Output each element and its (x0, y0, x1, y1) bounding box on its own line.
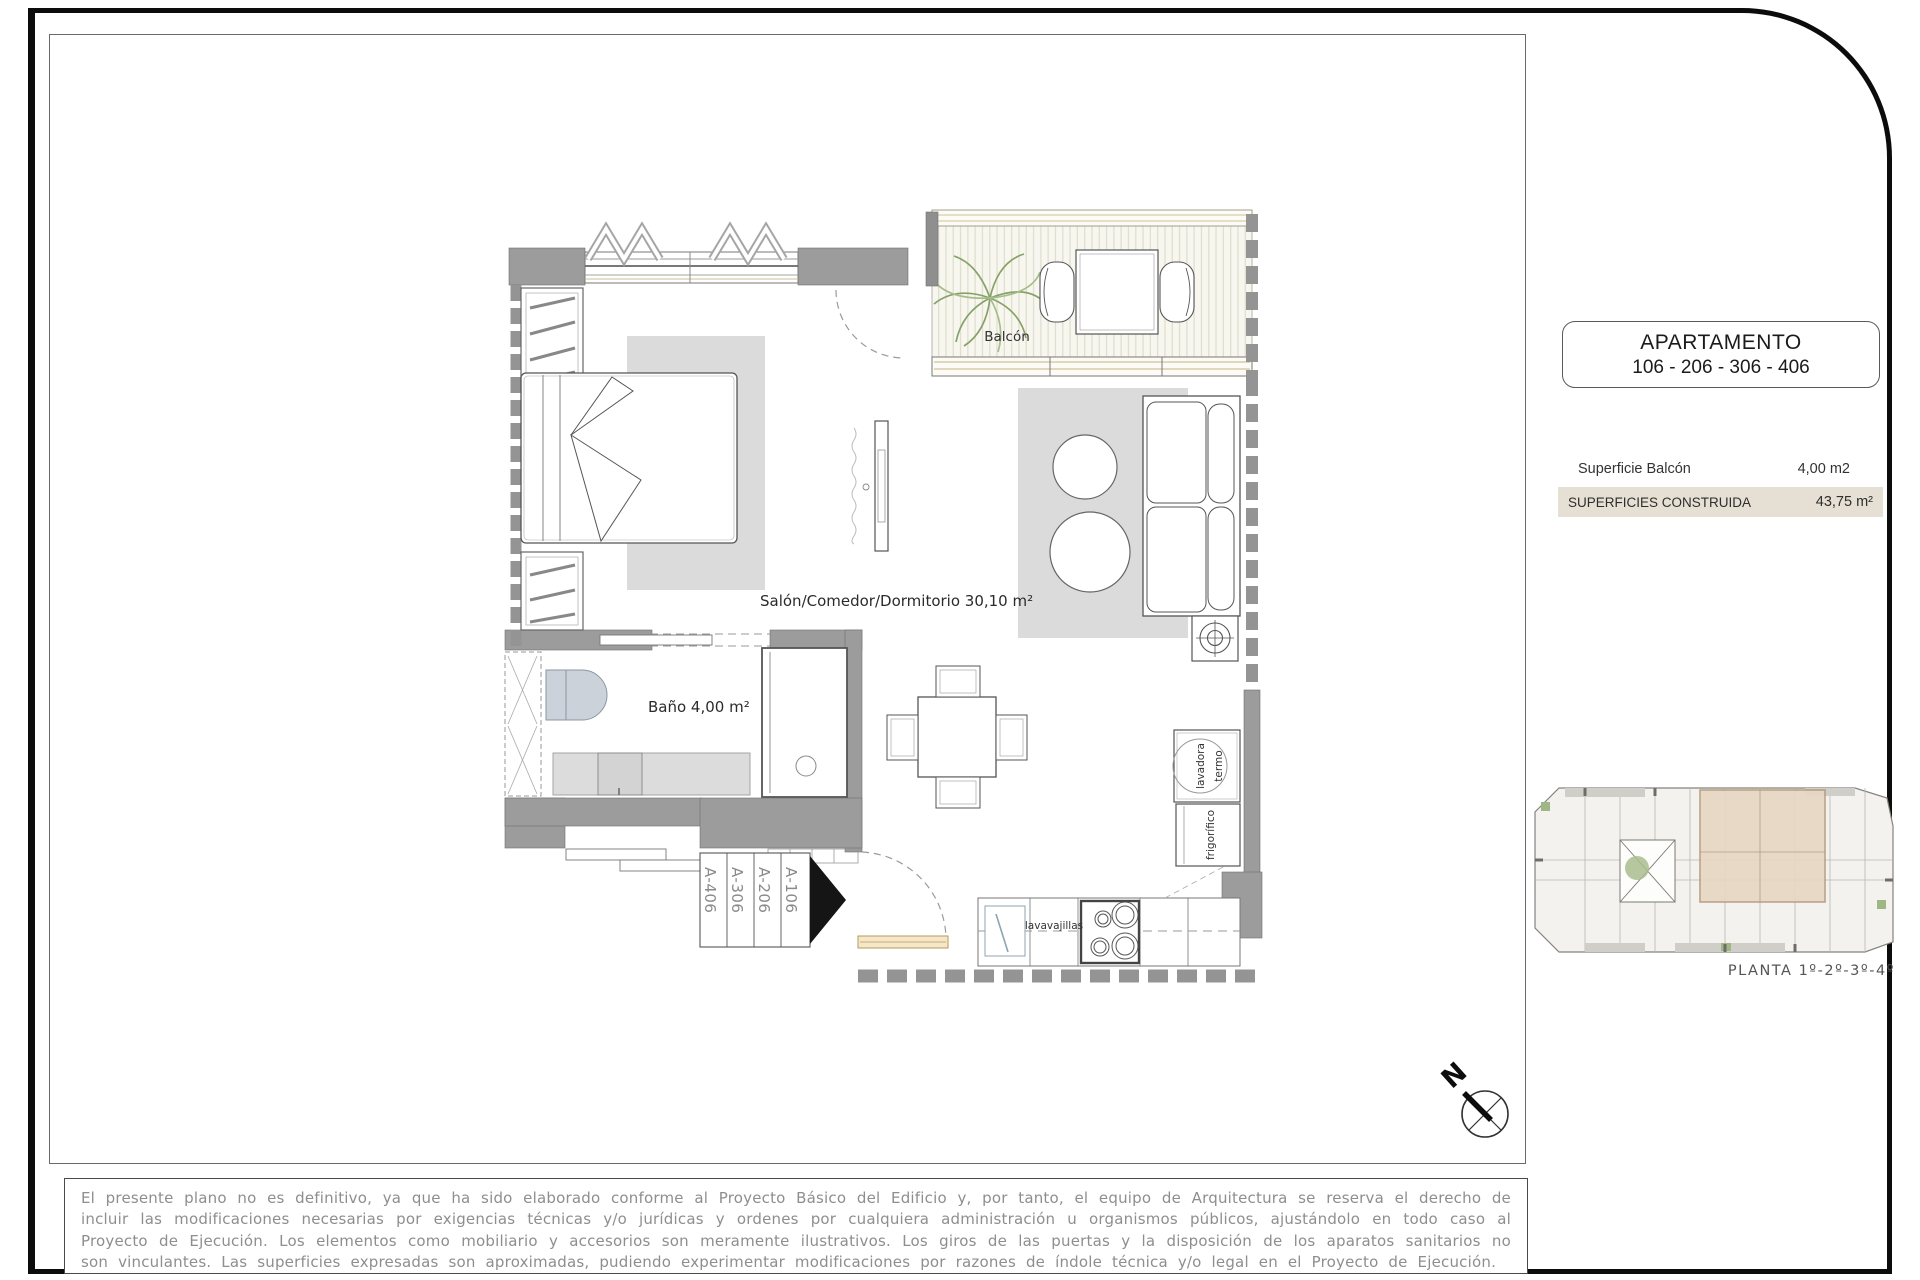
bath-sliding-door-top (600, 634, 770, 646)
balcony-access-door (836, 290, 904, 358)
north-compass: N (1438, 1058, 1538, 1158)
fridge-label: frigorífico (1205, 810, 1217, 860)
ac-unit (1192, 616, 1238, 661)
key-plan (1525, 782, 1898, 958)
surface-value: 43,75 m² (1816, 494, 1873, 510)
apartment-title-box: APARTAMENTO 106 - 206 - 306 - 406 (1562, 321, 1880, 388)
dining-table (887, 666, 1027, 808)
surface-row-balcony: Superficie Balcón 4,00 m2 (1578, 458, 1850, 480)
dishwasher-label: lavavajillas (1025, 920, 1083, 932)
balcony-top-rail (932, 210, 1252, 226)
svg-text:A-306: A-306 (728, 867, 746, 913)
keyplan-highlighted-unit (1700, 790, 1825, 902)
wardrobe-bottom (521, 552, 583, 630)
water-heater-label: termo (1213, 750, 1225, 781)
surface-row-built: SUPERFICIES CONSTRUIDA 43,75 m² (1558, 487, 1883, 517)
svg-text:A-106: A-106 (782, 867, 800, 913)
disclaimer-text: El presente plano no es definitivo, ya q… (81, 1188, 1511, 1273)
balcony-chair-right (1160, 262, 1194, 322)
north-label: N (1438, 1058, 1473, 1095)
hob (1081, 901, 1139, 963)
balcony-sliding-door (932, 357, 1252, 376)
shaft (505, 652, 541, 796)
tv-unit (852, 421, 888, 551)
entrance-arrow-icon (810, 856, 846, 944)
entrance-door (858, 852, 948, 948)
apartment-title: APARTAMENTO (1640, 331, 1801, 355)
sofa (1143, 396, 1240, 616)
surface-value: 4,00 m2 (1798, 461, 1850, 477)
washer-label: lavadora (1195, 743, 1207, 789)
keyplan-core (1620, 840, 1675, 902)
floor-plan: Balcón (49, 34, 1526, 1164)
toilet (546, 670, 607, 720)
balcony-table (1076, 250, 1158, 334)
balcony: Balcón (932, 210, 1252, 376)
bath-vanity (553, 753, 750, 795)
bathroom-label: Baño 4,00 m² (648, 698, 750, 716)
surface-label: SUPERFICIES CONSTRUIDA (1568, 495, 1751, 510)
balcony-chair-left (1040, 262, 1074, 322)
bedroom-window (585, 252, 798, 283)
disclaimer-box: El presente plano no es definitivo, ya q… (64, 1178, 1528, 1274)
apartment-units: 106 - 206 - 306 - 406 (1632, 357, 1809, 379)
shower (762, 648, 847, 797)
svg-text:A-406: A-406 (701, 867, 719, 913)
keyplan-caption: PLANTA 1º-2º-3º-4º (1700, 963, 1895, 979)
unit-label-block: A-406 A-306 A-206 A-106 (700, 853, 846, 947)
surface-label: Superficie Balcón (1578, 461, 1691, 477)
living-room-label: Salón/Comedor/Dormitorio 30,10 m² (760, 592, 1033, 610)
bed (521, 373, 737, 543)
svg-text:A-206: A-206 (755, 867, 773, 913)
balcony-label: Balcón (984, 329, 1030, 345)
kitchen-sink (985, 906, 1025, 956)
